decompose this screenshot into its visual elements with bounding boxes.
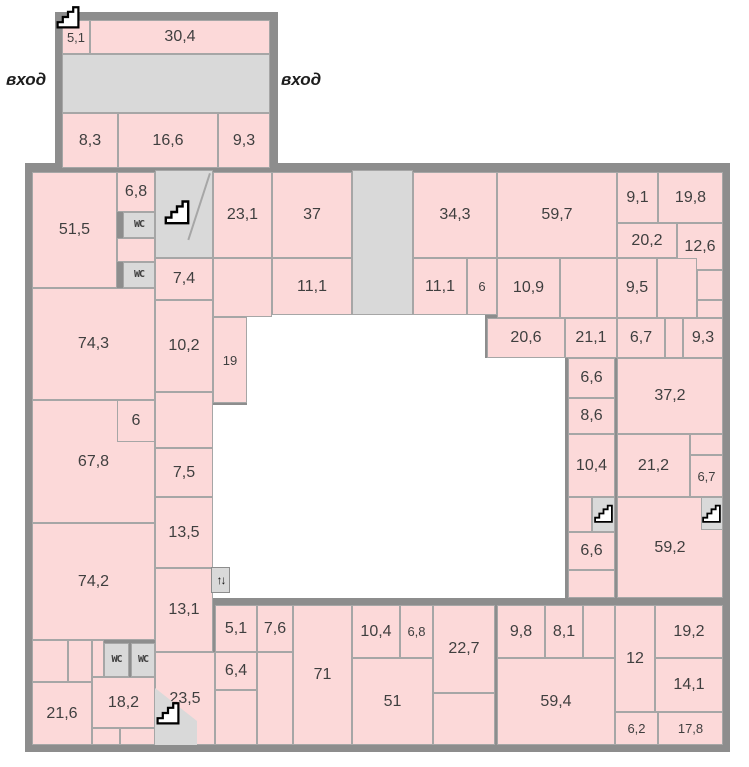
entrance-label-left: вход — [6, 70, 46, 90]
icons: ↑↓ — [0, 0, 749, 767]
entrance-label-right: вход — [281, 70, 321, 90]
stairs-icon — [593, 503, 614, 524]
floor-plan: 5,130,48,316,69,351,56,8WCWC23,13734,359… — [0, 0, 749, 767]
stairs-icon — [701, 503, 722, 524]
stairs-icon — [163, 198, 191, 226]
stairs-icon — [55, 4, 81, 30]
stairs-icon — [155, 700, 181, 726]
elevator-icon: ↑↓ — [211, 567, 230, 593]
